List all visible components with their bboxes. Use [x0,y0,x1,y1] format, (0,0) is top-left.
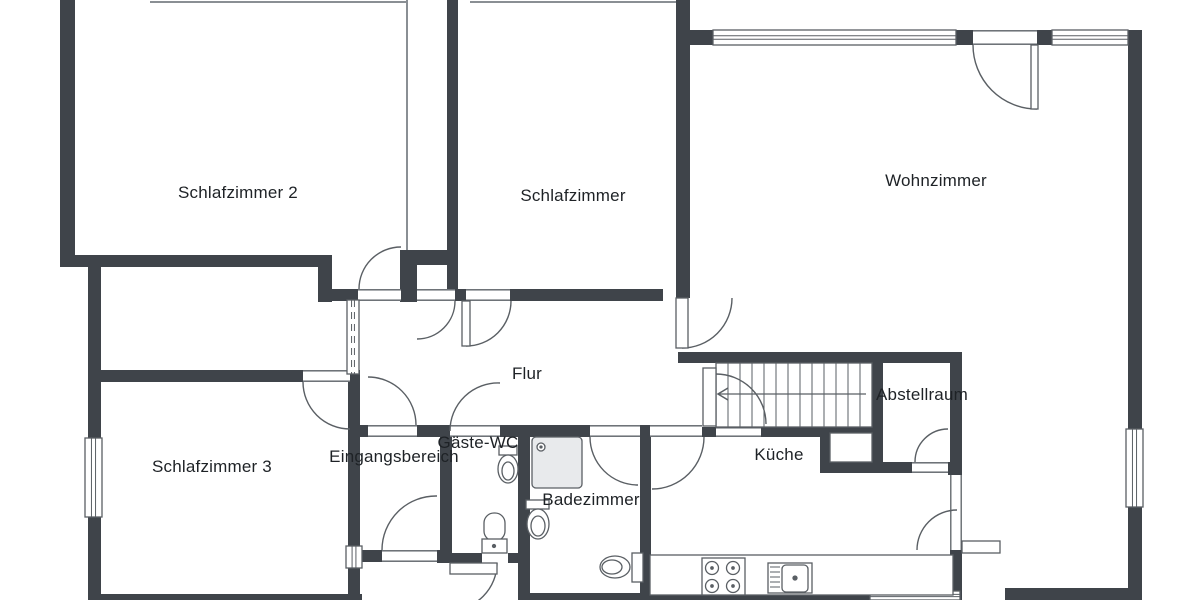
stairs-outline [716,363,872,427]
door-swing-arc [359,247,401,289]
wall-segment [318,255,332,302]
wall-opening [417,289,455,301]
wall-segment [400,265,417,302]
wall-segment [508,553,518,563]
gwc-sink-top-fixture [484,513,505,541]
room-label-schlafzimmer-3: Schlafzimmer 3 [152,457,272,477]
wall-opening [382,550,437,562]
door-swing-arc [652,437,704,489]
room-label-abstellraum: Abstellraum [876,385,968,405]
wall-segment [451,553,482,563]
window [85,438,102,517]
door-swing-arc [466,301,511,346]
door-swing-arc [682,298,732,348]
wall-segment [872,363,883,462]
wall-opening [716,427,761,437]
wall-segment [88,594,362,600]
wall-opening [466,289,510,301]
gwc-bowl-inner-fixture [502,462,514,480]
room-label-kueche: Küche [754,445,803,465]
wall-segment [88,517,101,600]
wall-segment [360,425,368,437]
wall-opening [368,425,417,437]
wall-segment [676,0,690,298]
floor-plan-canvas [0,0,1200,600]
room-label-flur: Flur [512,364,542,384]
wc2-bowl-inner-fixture [602,560,622,574]
wall-segment [60,255,332,267]
wall-segment [690,30,713,45]
burner-dot-fixture [732,585,734,587]
wall-opening [303,370,350,382]
wall-opening [950,513,962,550]
wall-segment [528,593,650,600]
wall-opening [358,289,401,301]
door-leaf [676,298,688,348]
burner-dot-fixture [711,567,713,569]
wall-segment [820,462,912,473]
burner-dot-fixture [711,585,713,587]
wall-segment [88,267,101,438]
door-swing-arc [303,382,350,429]
burner-dot-fixture [732,567,734,569]
door-swing-arc [368,377,416,425]
door-leaf [462,301,470,346]
wall-segment [1037,30,1052,45]
wall-segment [678,352,960,363]
wall-segment [1128,30,1142,429]
door-swing-arc [382,496,437,550]
wall-segment [88,370,303,382]
wall-opening [912,462,948,473]
wall-opening [950,475,962,513]
floorplan-page: { "title": "Wohnung Grundriss", "colors"… [0,0,1200,600]
wall-niche [830,433,872,462]
wall-segment [702,427,716,437]
shower-drain-dot-fixture [540,446,542,448]
window [1052,30,1128,45]
wall-segment [455,289,466,301]
wall-segment [1128,507,1142,600]
wall-opening [973,30,1037,45]
door-swing-arc [915,429,948,462]
sink-dot-fixture [793,576,797,580]
window [347,300,359,374]
wall-segment [956,30,973,45]
wall-segment [823,427,872,433]
wall-segment [360,550,382,562]
window [713,30,956,45]
door-leaf [703,368,716,426]
door-swing-arc [450,383,500,431]
window [1126,429,1143,507]
wall-segment [761,427,823,437]
wall-segment [510,289,663,301]
gwc-sink-dot-fixture [493,545,496,548]
window [346,546,362,568]
wall-segment [950,352,962,475]
wall-opening [650,425,702,437]
wall-segment [400,250,447,265]
floor-plan: Schlafzimmer 2 Schlafzimmer Wohnzimmer F… [0,0,1200,600]
wall-opening [590,425,640,437]
room-label-wohnzimmer: Wohnzimmer [885,171,987,191]
room-label-gaeste-wc: Gäste-WC [438,433,519,453]
door-swing-arc [973,45,1037,109]
door-swing-arc [417,301,455,339]
wc-bowl-inner-fixture [531,516,545,536]
wall-segment [518,425,530,600]
room-label-schlafzimmer-2: Schlafzimmer 2 [178,183,298,203]
wall-segment [1005,588,1128,600]
door-leaf [962,541,1000,553]
wc2-tank-fixture [632,553,643,582]
door-swing-arc [590,437,638,485]
room-label-schlafzimmer: Schlafzimmer [520,186,625,206]
wall-segment [60,0,75,267]
wall-segment [332,289,358,301]
door-leaf [450,563,497,574]
wall-segment [447,0,458,292]
wall-segment [437,550,451,563]
door-leaf [1031,45,1038,109]
room-label-badezimmer: Badezimmer [542,490,639,510]
